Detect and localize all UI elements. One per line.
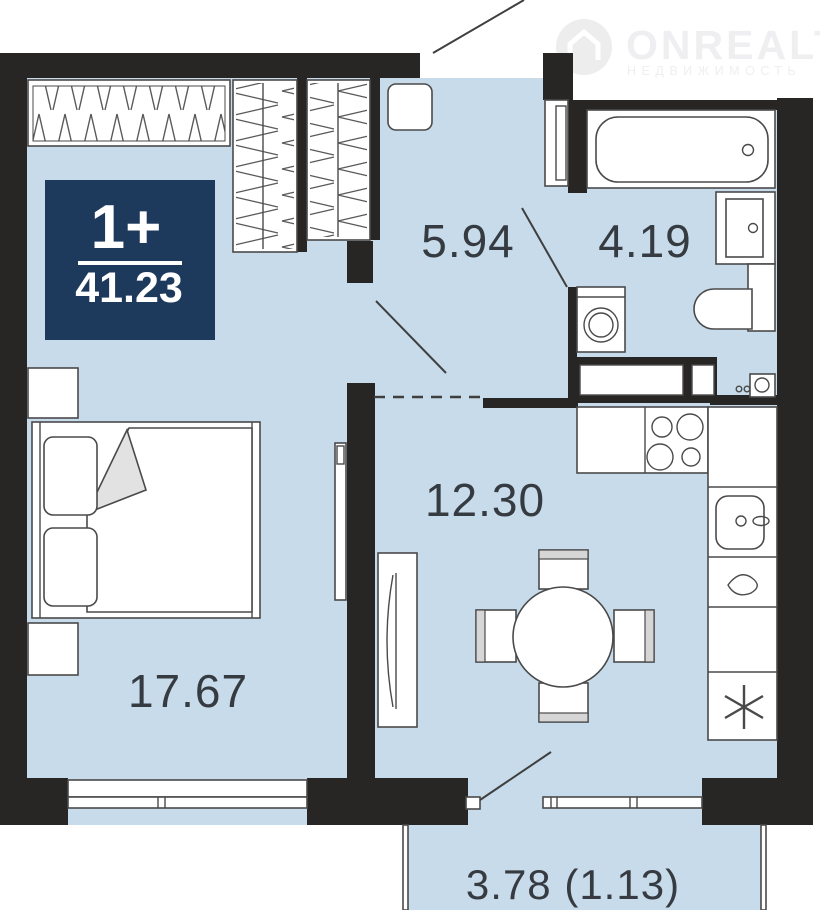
- wall-segment: [297, 78, 307, 252]
- nightstand: [28, 623, 78, 675]
- washing-machine: [577, 287, 625, 352]
- balcony-wall: [761, 825, 766, 910]
- wall-segment: [568, 100, 587, 193]
- watermark-logo: ONREALT НЕДВИЖИМОСТЬ: [556, 19, 820, 78]
- bathroom-area-label: 4.19: [598, 215, 692, 267]
- wall-segment: [347, 383, 375, 825]
- info-badge: 1+ 41.23: [45, 180, 215, 340]
- balcony-wall: [403, 825, 408, 910]
- pillow: [44, 528, 97, 606]
- wall-segment: [0, 778, 68, 825]
- outside-patch: [543, 78, 777, 100]
- watermark-tagline: НЕДВИЖИМОСТЬ: [627, 64, 801, 78]
- bathroom-sink: [716, 192, 775, 264]
- balcony-door-threshold: [466, 797, 480, 809]
- nightstand: [28, 368, 78, 418]
- hallway-area-label: 5.94: [421, 215, 515, 267]
- kitchen-sink: [716, 496, 769, 549]
- wall-segment: [777, 98, 813, 825]
- entrance-door-swing: [433, 0, 524, 53]
- badge-layout-type: 1+: [91, 193, 162, 262]
- wardrobe-hangers: [33, 86, 225, 141]
- wall-segment: [347, 241, 373, 283]
- ventilation-shaft: [580, 365, 683, 395]
- wall-segment: [0, 53, 27, 825]
- wall-segment: [307, 778, 468, 825]
- floor-plan-canvas: ONREALT НЕДВИЖИМОСТЬ: [0, 0, 820, 910]
- tv-stand: [378, 553, 417, 727]
- wall-segment: [702, 778, 777, 825]
- kitchen-living-area-label: 12.30: [425, 474, 545, 526]
- double-bed: [32, 422, 260, 618]
- bedroom-tv: [335, 443, 346, 600]
- wall-segment: [483, 398, 578, 408]
- wall-segment: [370, 78, 380, 240]
- entry-mat: [388, 84, 432, 130]
- bedroom-area-label: 17.67: [128, 665, 248, 717]
- ventilation-shaft: [692, 365, 714, 395]
- closet-hangers: [236, 83, 294, 249]
- watermark-brand: ONREALT: [626, 22, 820, 68]
- dining-table: [513, 587, 613, 687]
- bathtub: [587, 110, 775, 188]
- balcony-area-label: 3.78 (1.13): [466, 861, 680, 908]
- badge-total-area: 41.23: [75, 264, 183, 312]
- wall-segment: [573, 100, 777, 110]
- living-room-window: [543, 797, 702, 808]
- kitchen-counter-right: [708, 407, 777, 740]
- floor-plan: ONREALT НЕДВИЖИМОСТЬ: [0, 0, 820, 910]
- wall-segment: [543, 53, 573, 100]
- pillow: [44, 437, 97, 515]
- bedroom-window: [68, 780, 307, 808]
- wall-segment: [0, 53, 420, 78]
- toilet-bowl: [694, 289, 752, 329]
